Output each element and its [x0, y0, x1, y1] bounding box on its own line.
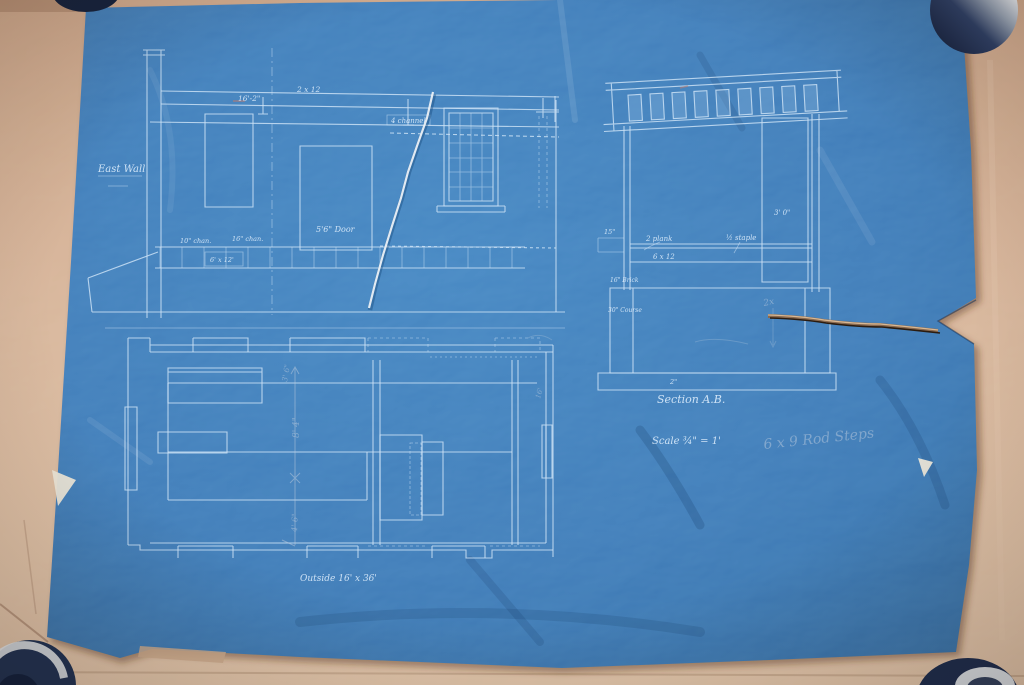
- photo-vignette: [0, 0, 1024, 685]
- blueprint-photo: East Wall 2 x 12 16'-2" 4 channel 5'6" D…: [0, 0, 1024, 685]
- photo-of-blueprint: East Wall 2 x 12 16'-2" 4 channel 5'6" D…: [0, 0, 1024, 685]
